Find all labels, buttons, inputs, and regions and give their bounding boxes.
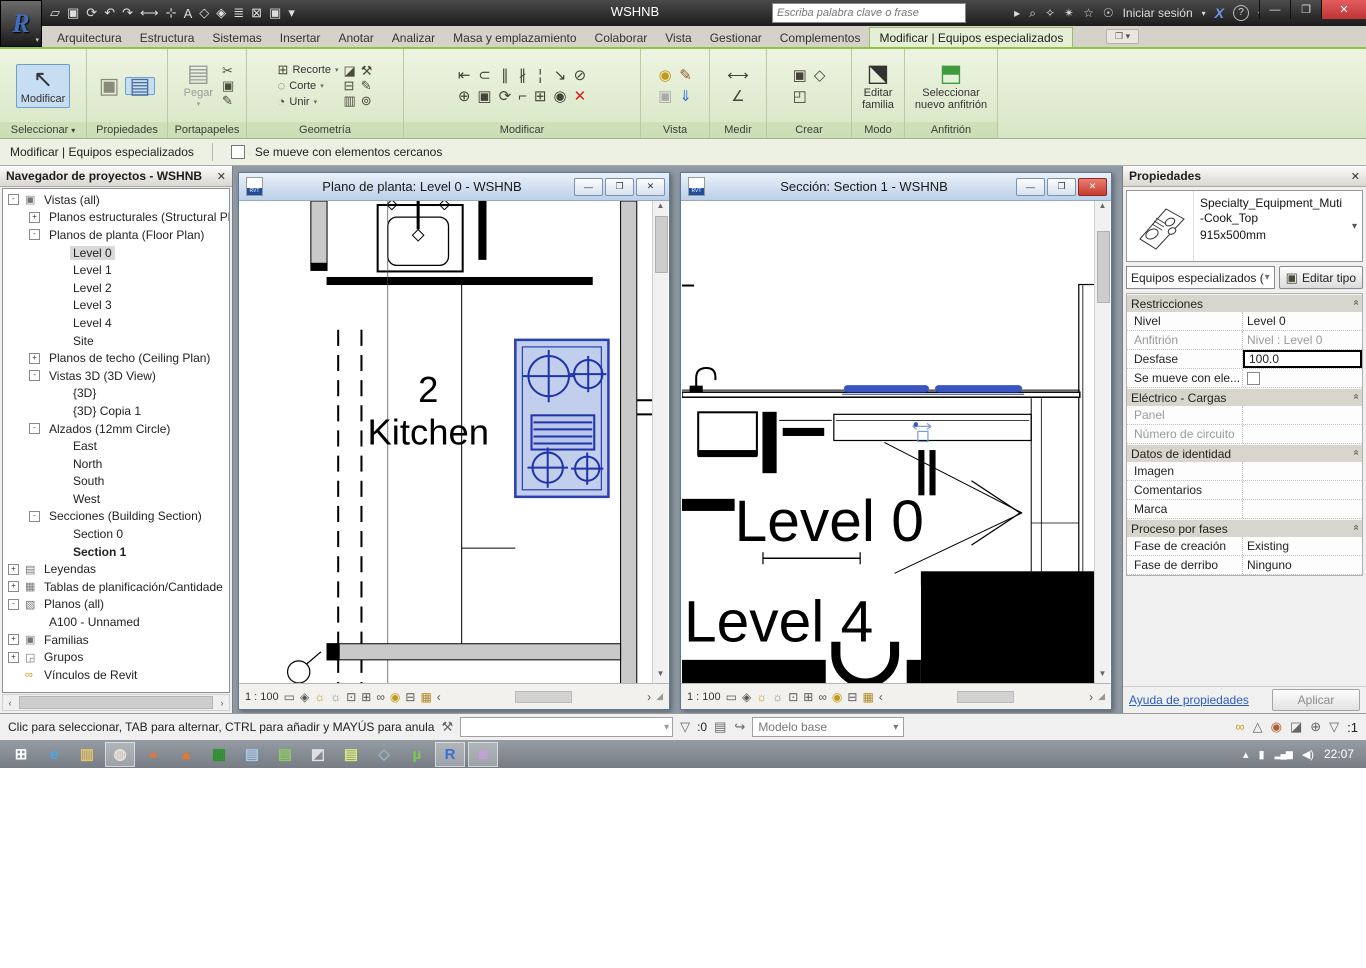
properties-header: Propiedades ✕ <box>1123 166 1366 187</box>
moves-with-nearby-checkbox[interactable] <box>231 145 245 159</box>
scroll-thumb[interactable] <box>19 696 213 709</box>
type-preview-image <box>1127 191 1194 261</box>
tree-item-label: Level 4 <box>70 316 115 330</box>
property-row[interactable]: Eléctrico - Cargas » <box>1127 388 1362 406</box>
tree-item-label: Vistas (all) <box>41 193 103 207</box>
panel-chevron-icon: ▾ <box>71 126 75 135</box>
redo-icon[interactable]: ↷ <box>122 5 133 21</box>
trim-extend-icon[interactable]: ⌐ <box>518 88 527 105</box>
property-value[interactable] <box>1243 481 1362 499</box>
tree-item-label: {3D} Copia 1 <box>70 404 144 418</box>
section-view-control-bar: 1 : 100 ▭◈☼☼⊡⊞∞◉⊟▦ ‹ › ◢ <box>681 683 1111 709</box>
property-label: Marca <box>1127 500 1243 518</box>
tree-item[interactable]: - Vistas (all) <box>3 191 229 209</box>
tree-item-label: North <box>70 457 105 471</box>
project-browser-close-icon[interactable]: ✕ <box>217 170 226 183</box>
ribbon-tab[interactable]: Insertar <box>271 28 330 47</box>
mirror-line-icon[interactable]: ∦ <box>519 66 527 84</box>
tree-item-label: Leyendas <box>41 562 99 576</box>
panel-modificar: ⇤⊕⊂▣∥⟳∦⌐¦⊞↘◉⊘✕ Modificar <box>404 49 641 138</box>
mirror-axis-icon[interactable]: ∥ <box>501 66 509 84</box>
scroll-up-icon[interactable]: ▲ <box>1095 201 1110 215</box>
tree-expand-icon[interactable]: + <box>8 634 19 645</box>
property-row[interactable]: Nivel Level 0 » <box>1127 312 1362 331</box>
cut-icon[interactable]: ✂ <box>222 64 234 78</box>
tree-item[interactable]: Level 3 <box>3 297 229 315</box>
tree-item[interactable]: + Planos de techo (Ceiling Plan) <box>3 349 229 367</box>
calc-app-icon[interactable]: ▤ <box>270 742 300 767</box>
property-value[interactable] <box>1243 462 1362 480</box>
property-label: Comentarios <box>1127 481 1243 499</box>
tree-item-label: Familias <box>41 633 92 647</box>
panel-label-anfitrion[interactable]: Anfitrión <box>905 122 997 138</box>
default-3d-view-icon[interactable]: ◇ <box>199 5 209 21</box>
crop-region-visibility-icon[interactable]: ⊞ <box>361 690 371 704</box>
ribbon-tab[interactable]: Complementos <box>771 28 870 47</box>
ie-icon[interactable]: e <box>39 742 69 767</box>
hscroll-right-icon[interactable]: › <box>1089 690 1093 704</box>
tree-item[interactable]: Section 0 <box>3 525 229 543</box>
type-dropdown-icon[interactable]: ▾ <box>1347 191 1362 261</box>
crop-view-icon[interactable]: ⊡ <box>346 690 356 704</box>
explorer-icon[interactable]: ▥ <box>72 742 102 767</box>
detail-level-icon[interactable]: ▭ <box>726 690 737 704</box>
selected-cooktop[interactable] <box>515 340 608 497</box>
scale-label[interactable]: 1 : 100 <box>687 691 721 703</box>
scale-label[interactable]: 1 : 100 <box>245 691 279 703</box>
apply-button[interactable]: Aplicar <box>1272 689 1360 711</box>
split-icon[interactable]: ¦ <box>538 67 542 84</box>
pin-icon[interactable]: ◉ <box>554 87 567 105</box>
ribbon-tab[interactable]: Gestionar <box>701 28 771 47</box>
close-button[interactable]: ✕ <box>1321 0 1366 19</box>
select-pinned-icon[interactable]: ◉ <box>1271 719 1282 735</box>
panel-label-seleccionar[interactable]: Seleccionar ▾ <box>0 122 86 138</box>
property-row[interactable]: Desfase 100.0 » <box>1127 350 1362 369</box>
scroll-down-icon[interactable]: ▼ <box>653 669 668 683</box>
paste-button[interactable]: ▤ Pegar ▾ <box>180 59 217 113</box>
ribbon-tab[interactable]: Colaborar <box>586 28 657 47</box>
panel-label-crear[interactable]: Crear <box>767 122 851 138</box>
temporary-view-properties-icon[interactable]: ⊟ <box>847 690 857 704</box>
project-browser-tree: - Vistas (all) + Planos estructurales (S… <box>2 188 230 693</box>
tree-item[interactable]: + Leyendas <box>3 560 229 578</box>
section-view-titlebar[interactable]: Sección: Section 1 - WSHNB — ❐ ✕ <box>681 173 1111 201</box>
minimize-button[interactable]: — <box>1259 0 1290 19</box>
panel-vista: ◉▣✎⇓ Vista <box>641 49 710 138</box>
detail-level-icon[interactable]: ▭ <box>284 690 295 704</box>
properties-footer: Ayuda de propiedades Aplicar <box>1123 686 1366 713</box>
panel-label-geometria[interactable]: Geometría <box>247 122 403 138</box>
infocenter: ▸ ⌕✧✴☆☉ Iniciar sesión ▾ X ? ▾ <box>1014 0 1262 26</box>
remove-coping-icon[interactable]: ⊟ <box>344 79 356 93</box>
rotate-icon[interactable]: ⟳ <box>499 87 512 105</box>
workset-select[interactable]: ▾ <box>460 717 673 737</box>
type-size: 915x500mm <box>1200 228 1345 243</box>
visual-style-icon[interactable]: ◈ <box>742 690 751 704</box>
properties-toggle-icon[interactable]: ▤ <box>125 77 156 95</box>
aligned-dimension-icon[interactable]: ⊹ <box>166 5 177 21</box>
tree-expand-icon[interactable]: - <box>8 599 19 610</box>
property-label: Se mueve con ele... <box>1127 369 1243 387</box>
property-label: Nivel <box>1127 312 1243 330</box>
resize-grip-icon[interactable]: ◢ <box>1098 691 1105 702</box>
temporary-hide-isolate-icon[interactable]: ∞ <box>376 690 385 704</box>
revit-icon[interactable]: R <box>435 742 465 767</box>
geometry-dropdown[interactable]: ⊞ Recorte ▾ <box>278 63 339 77</box>
measure-between-icon[interactable]: ⟷ <box>727 66 749 84</box>
plan-view-canvas[interactable]: 2 Kitchen ▲ ▼ <box>240 201 668 683</box>
divider <box>212 143 213 161</box>
scroll-down-icon[interactable]: ▼ <box>1095 669 1110 683</box>
section-collapse-icon[interactable]: » <box>1351 302 1362 306</box>
temporary-view-properties-icon[interactable]: ⊟ <box>405 690 415 704</box>
help-icon[interactable]: ? <box>1233 5 1249 21</box>
sign-in-label[interactable]: Iniciar sesión <box>1123 6 1193 20</box>
category-filter-select[interactable]: Equipos especializados ( ▾ <box>1126 266 1275 289</box>
angle-icon[interactable]: ∠ <box>731 87 744 105</box>
copy-to-clipboard-icon[interactable]: ▣ <box>222 79 234 93</box>
search-go-icon[interactable]: ⌕ <box>1029 6 1036 21</box>
create-similar-icon[interactable]: ◰ <box>793 87 807 105</box>
customize-qat-icon[interactable]: ▾ <box>288 5 295 21</box>
paint-icon[interactable]: ✎ <box>361 79 373 93</box>
section-icon[interactable]: ◈ <box>216 5 226 21</box>
design-options-icon[interactable]: ↪ <box>734 719 745 735</box>
plan-vscrollbar[interactable]: ▲ ▼ <box>652 201 668 683</box>
tree-item[interactable]: East <box>3 437 229 455</box>
property-value[interactable] <box>1243 425 1362 443</box>
ribbon-tab[interactable]: Analizar <box>383 28 444 47</box>
communication-center-icon[interactable]: ✧ <box>1045 6 1055 21</box>
firefox-icon[interactable]: ◕ <box>138 742 168 767</box>
mini-app-icon[interactable]: ◇ <box>369 742 399 767</box>
tree-item-label: East <box>70 439 100 453</box>
ribbon-state-toggle[interactable]: ❐ ▾ <box>1106 29 1139 44</box>
tree-item[interactable]: - Secciones (Building Section) <box>3 508 229 526</box>
panel-portapapeles: ▤ Pegar ▾ ✂ ▣ ✎ Portapapeles <box>168 49 247 138</box>
tree-expand-icon[interactable]: - <box>29 229 40 240</box>
view-close-button[interactable]: ✕ <box>1078 178 1107 196</box>
panel-label-modo[interactable]: Modo <box>852 122 904 138</box>
chrome-icon[interactable]: ◍ <box>105 742 135 767</box>
ribbon-tab[interactable]: Anotar <box>329 28 382 47</box>
clock[interactable]: 22:07 <box>1324 747 1354 761</box>
delete-icon[interactable]: ✕ <box>574 87 587 105</box>
beam-joins-icon[interactable]: ▥ <box>344 94 356 108</box>
tree-item[interactable]: Level 0 <box>3 244 229 262</box>
property-label: Panel <box>1127 406 1243 424</box>
battery-icon[interactable]: ▮ <box>1259 748 1265 761</box>
visual-style-icon[interactable]: ◈ <box>300 690 309 704</box>
hscroll-left-icon[interactable]: ‹ <box>437 690 441 704</box>
crop-view-icon[interactable]: ⊡ <box>788 690 798 704</box>
spreadsheet-app-icon[interactable]: ▦ <box>204 742 234 767</box>
edit-type-icon: ▣ <box>1286 271 1298 285</box>
property-value[interactable] <box>1243 500 1362 518</box>
tree-item-label: Planos de techo (Ceiling Plan) <box>46 351 213 365</box>
plan-view-titlebar[interactable]: Plano de planta: Level 0 - WSHNB — ❐ ✕ <box>239 173 669 201</box>
tree-expand-icon[interactable]: - <box>29 370 40 381</box>
ribbon: ↖ Modificar Seleccionar ▾ ▣ ▤ Propiedade… <box>0 49 1366 139</box>
plan-drawing: 2 Kitchen <box>240 201 655 683</box>
property-row[interactable]: Anfitrión Nivel : Level 0 » <box>1127 331 1362 350</box>
property-row[interactable]: Fase de derribo Ninguno » <box>1127 556 1362 575</box>
split-face-icon[interactable]: ⊚ <box>361 94 373 108</box>
create-group-icon[interactable]: ▣ <box>793 66 807 84</box>
restore-button[interactable]: ❐ <box>1290 0 1321 19</box>
utorrent-icon[interactable]: µ <box>402 742 432 767</box>
tree-item[interactable]: {3D} <box>3 385 229 403</box>
property-row[interactable]: Restricciones » <box>1127 294 1362 312</box>
ribbon-tab-bar: ArquitecturaEstructuraSistemasInsertarAn… <box>0 26 1366 47</box>
tree-item[interactable]: + Planos estructurales (Structural Pla <box>3 209 229 227</box>
tree-item[interactable]: + Tablas de planificación/Cantidade <box>3 578 229 596</box>
unpin-icon[interactable]: ⊘ <box>574 66 587 84</box>
undo-icon[interactable]: ↶ <box>104 5 115 21</box>
project-browser: Navegador de proyectos - WSHNB ✕ - Vista… <box>0 166 233 713</box>
property-row[interactable]: Datos de identidad » <box>1127 444 1362 462</box>
start-button[interactable]: ⊞ <box>6 742 36 767</box>
properties-close-icon[interactable]: ✕ <box>1351 170 1360 183</box>
demolish-icon[interactable]: ⚒ <box>361 64 373 78</box>
linework-icon[interactable]: ✎ <box>679 66 692 84</box>
ribbon-tab[interactable]: Vista <box>656 28 700 47</box>
properties-help-link[interactable]: Ayuda de propiedades <box>1129 693 1249 707</box>
geometry-dropdown[interactable]: ◌ Corte ▾ <box>278 79 339 93</box>
property-row[interactable]: Se mueve con ele... » <box>1127 369 1362 388</box>
measure-icon[interactable]: ⟷ <box>140 5 159 21</box>
edit-type-button[interactable]: ▣ Editar tipo <box>1279 266 1363 289</box>
scroll-left-icon[interactable]: ‹ <box>3 698 17 708</box>
property-label: Imagen <box>1127 462 1243 480</box>
exchange-apps-icon[interactable]: X <box>1215 5 1224 21</box>
copy-icon[interactable]: ▣ <box>477 87 491 105</box>
hscroll-thumb[interactable] <box>957 691 1014 703</box>
tree-item[interactable]: Level 2 <box>3 279 229 297</box>
tray-expand-icon[interactable]: ▴ <box>1243 748 1249 761</box>
writer-app-icon[interactable]: ▤ <box>237 742 267 767</box>
ribbon-tab[interactable]: Sistemas <box>203 28 270 47</box>
panel-label-portapapeles[interactable]: Portapapeles <box>168 122 246 138</box>
text-icon[interactable]: A <box>184 6 193 21</box>
offset-icon[interactable]: ⊂ <box>478 66 491 84</box>
thin-lines-icon[interactable]: ≣ <box>233 5 244 21</box>
panel-label-vista[interactable]: Vista <box>641 122 709 138</box>
tree-item-label: Site <box>70 334 97 348</box>
move-icon[interactable]: ⊕ <box>458 87 471 105</box>
application-menu-button[interactable]: R ▾ <box>0 0 42 47</box>
selection-filter-icon[interactable]: ▽ <box>1329 719 1339 735</box>
help-search-input[interactable] <box>772 3 966 23</box>
crop-region-visibility-icon[interactable]: ⊞ <box>803 690 813 704</box>
worksharing-display-icon[interactable]: ▦ <box>420 690 431 704</box>
scroll-thumb[interactable] <box>1097 231 1110 303</box>
worksets-icon[interactable]: ⚒ <box>441 719 453 735</box>
sign-in-icon[interactable]: ☉ <box>1103 6 1114 21</box>
tree-expand-icon[interactable]: - <box>8 194 19 205</box>
network-signal-icon[interactable]: ▂▄▆ <box>1275 749 1292 760</box>
ribbon-tab[interactable]: Arquitectura <box>48 28 131 47</box>
scroll-right-icon[interactable]: › <box>215 698 229 708</box>
subscription-center-icon[interactable]: ✴ <box>1064 6 1074 21</box>
tree-item[interactable]: Site <box>3 332 229 350</box>
tree-item[interactable]: Level 1 <box>3 261 229 279</box>
panel-label-propiedades[interactable]: Propiedades <box>87 122 167 138</box>
project-browser-hscrollbar[interactable]: ‹ › <box>2 694 230 711</box>
tree-item-label: Secciones (Building Section) <box>46 509 205 523</box>
tree-item[interactable]: North <box>3 455 229 473</box>
panel-label-modificar[interactable]: Modificar <box>404 122 640 138</box>
drag-on-selection-icon[interactable]: ⊕ <box>1310 719 1321 735</box>
property-value[interactable]: Existing <box>1243 537 1362 555</box>
modify-button[interactable]: ↖ Modificar <box>16 64 71 108</box>
temporary-hide-isolate-icon[interactable]: ∞ <box>818 690 827 704</box>
property-value[interactable]: Level 0 <box>1243 312 1362 330</box>
revit-logo: R <box>12 9 29 39</box>
pick-new-host-button[interactable]: ⬒ Seleccionar nuevo anfitrión <box>910 59 992 113</box>
property-row[interactable]: Proceso por fases » <box>1127 519 1362 537</box>
select-underlay-icon[interactable]: △ <box>1253 719 1263 735</box>
displace-icon[interactable]: ⇓ <box>679 87 692 105</box>
scale-icon[interactable]: ↘ <box>554 66 567 84</box>
view-restore-button[interactable]: ❐ <box>605 178 634 196</box>
type-selector[interactable]: Specialty_Equipment_Muti-Cook_Top 915x50… <box>1126 190 1363 262</box>
ribbon-toggle-chevron-icon: ▾ <box>1126 31 1131 41</box>
tree-item[interactable]: Vínculos de Revit <box>3 666 229 684</box>
tree-item[interactable]: South <box>3 473 229 491</box>
tree-item[interactable]: - Alzados (12mm Circle) <box>3 420 229 438</box>
tree-item-label: A100 - Unnamed <box>46 615 143 629</box>
section-vscrollbar[interactable]: ▲ ▼ <box>1094 201 1110 683</box>
resize-grip-icon[interactable]: ◢ <box>656 691 663 702</box>
section-collapse-icon[interactable]: » <box>1351 396 1362 400</box>
vlc-icon[interactable]: ▲ <box>171 742 201 767</box>
editable-only-icon[interactable]: ▤ <box>714 719 726 735</box>
tree-expand-icon[interactable]: + <box>29 353 40 364</box>
photo-app-icon[interactable]: ◩ <box>303 742 333 767</box>
apply-coping-icon[interactable]: ◪ <box>344 64 356 78</box>
ribbon-tab[interactable]: Masa y emplazamiento <box>444 28 585 47</box>
tree-expand-icon[interactable]: + <box>8 564 19 575</box>
tree-item[interactable]: {3D} Copia 1 <box>3 402 229 420</box>
tree-item[interactable]: - Vistas 3D (3D View) <box>3 367 229 385</box>
select-links-icon[interactable]: ∞ <box>1235 719 1244 735</box>
panel-label-medir[interactable]: Medir <box>710 122 766 138</box>
array-icon[interactable]: ⊞ <box>534 87 547 105</box>
create-assembly-icon[interactable]: ◇ <box>814 66 826 84</box>
property-value[interactable]: 100.0 <box>1243 350 1362 368</box>
ribbon-tab[interactable]: Modificar | Equipos especializados <box>869 27 1073 47</box>
property-row[interactable]: Marca » <box>1127 500 1362 519</box>
view-restore-button[interactable]: ❐ <box>1047 178 1076 196</box>
tree-item[interactable]: + Grupos <box>3 648 229 666</box>
editable-filter-icon[interactable]: ▽ <box>680 719 690 735</box>
worksharing-display-icon[interactable]: ▦ <box>862 690 873 704</box>
property-row[interactable]: Panel » <box>1127 406 1362 425</box>
hscroll-thumb[interactable] <box>515 691 572 703</box>
modify-cursor-icon: ↖ <box>33 67 53 93</box>
sun-path-icon[interactable]: ☼ <box>314 690 325 704</box>
select-by-face-icon[interactable]: ◪ <box>1290 719 1302 735</box>
tree-expand-icon[interactable]: - <box>29 511 40 522</box>
section-view-canvas[interactable]: Level 0 Level 4 ▲ ▼ <box>682 201 1110 683</box>
tree-expand-icon[interactable]: + <box>8 652 19 663</box>
property-row[interactable]: Comentarios » <box>1127 481 1362 500</box>
view-minimize-button[interactable]: — <box>574 178 603 196</box>
scroll-up-icon[interactable]: ▲ <box>653 201 668 215</box>
tree-item-label: Level 1 <box>70 263 115 277</box>
scroll-thumb[interactable] <box>655 216 668 273</box>
tree-item[interactable]: Level 4 <box>3 314 229 332</box>
property-value[interactable] <box>1243 369 1362 387</box>
tree-expand-icon[interactable]: + <box>29 212 40 223</box>
property-row[interactable]: Fase de creación Existing » <box>1127 537 1362 556</box>
tree-item[interactable]: - Planos de planta (Floor Plan) <box>3 226 229 244</box>
close-hidden-windows-icon[interactable]: ⊠ <box>251 5 262 21</box>
view-close-button[interactable]: ✕ <box>636 178 665 196</box>
rvt-file-icon <box>688 177 705 196</box>
property-value[interactable]: Ninguno <box>1243 556 1362 574</box>
open-icon[interactable]: ▱ <box>50 5 60 21</box>
sign-in-chevron-icon[interactable]: ▾ <box>1202 9 1206 18</box>
view-minimize-button[interactable]: — <box>1016 178 1045 196</box>
property-value[interactable] <box>1243 406 1362 424</box>
section-collapse-icon[interactable]: » <box>1351 527 1362 531</box>
switch-windows-icon[interactable]: ▣ <box>269 5 281 21</box>
shadows-icon[interactable]: ☼ <box>772 690 783 704</box>
sun-path-icon[interactable]: ☼ <box>756 690 767 704</box>
sync-icon[interactable]: ⟳ <box>86 5 97 21</box>
tree-expand-icon[interactable]: + <box>8 581 19 592</box>
panel-modo: ⬔ Editar familia Modo <box>852 49 905 138</box>
property-row[interactable]: Número de circuito » <box>1127 425 1362 444</box>
tree-item[interactable]: West <box>3 490 229 508</box>
tree-item[interactable]: Section 1 <box>3 543 229 561</box>
properties-palette-icon[interactable]: ▣ <box>99 73 120 99</box>
tree-expand-icon[interactable]: - <box>29 423 40 434</box>
property-row[interactable]: Imagen » <box>1127 462 1362 481</box>
volume-icon[interactable]: ◀) <box>1302 748 1314 761</box>
gallery-app-icon[interactable]: ◙ <box>468 742 498 767</box>
hscroll-left-icon[interactable]: ‹ <box>879 690 883 704</box>
property-value[interactable]: Nivel : Level 0 <box>1243 331 1362 349</box>
edit-family-button[interactable]: ⬔ Editar familia <box>857 59 899 113</box>
favorites-icon[interactable]: ☆ <box>1083 6 1094 21</box>
shadows-icon[interactable]: ☼ <box>330 690 341 704</box>
section-collapse-icon[interactable]: » <box>1351 452 1362 456</box>
reveal-hidden-icon[interactable]: ◉ <box>390 690 400 704</box>
tree-item-label: Grupos <box>41 650 86 664</box>
align-icon[interactable]: ⇤ <box>458 66 471 84</box>
property-label: Restricciones <box>1131 297 1354 311</box>
tree-item[interactable]: - Planos (all) <box>3 596 229 614</box>
reveal-hidden-icon[interactable]: ◉ <box>832 690 842 704</box>
render-icon[interactable]: ▣ <box>658 87 672 105</box>
lightbulb-icon[interactable]: ◉ <box>659 66 672 84</box>
hscroll-right-icon[interactable]: › <box>647 690 651 704</box>
match-properties-icon[interactable]: ✎ <box>222 94 234 108</box>
geometry-dropdown[interactable]: ◔ Unir ▾ <box>278 95 339 109</box>
ribbon-tab[interactable]: Estructura <box>131 28 204 47</box>
tree-item[interactable]: + Familias <box>3 631 229 649</box>
tree-item[interactable]: A100 - Unnamed <box>3 613 229 631</box>
design-option-select[interactable]: Modelo base ▾ <box>752 717 904 737</box>
tree-item-label: Section 0 <box>70 527 126 541</box>
search-expand-icon[interactable]: ▸ <box>1014 6 1020 20</box>
save-icon[interactable]: ▣ <box>67 5 79 21</box>
notes-app-icon[interactable]: ▤ <box>336 742 366 767</box>
